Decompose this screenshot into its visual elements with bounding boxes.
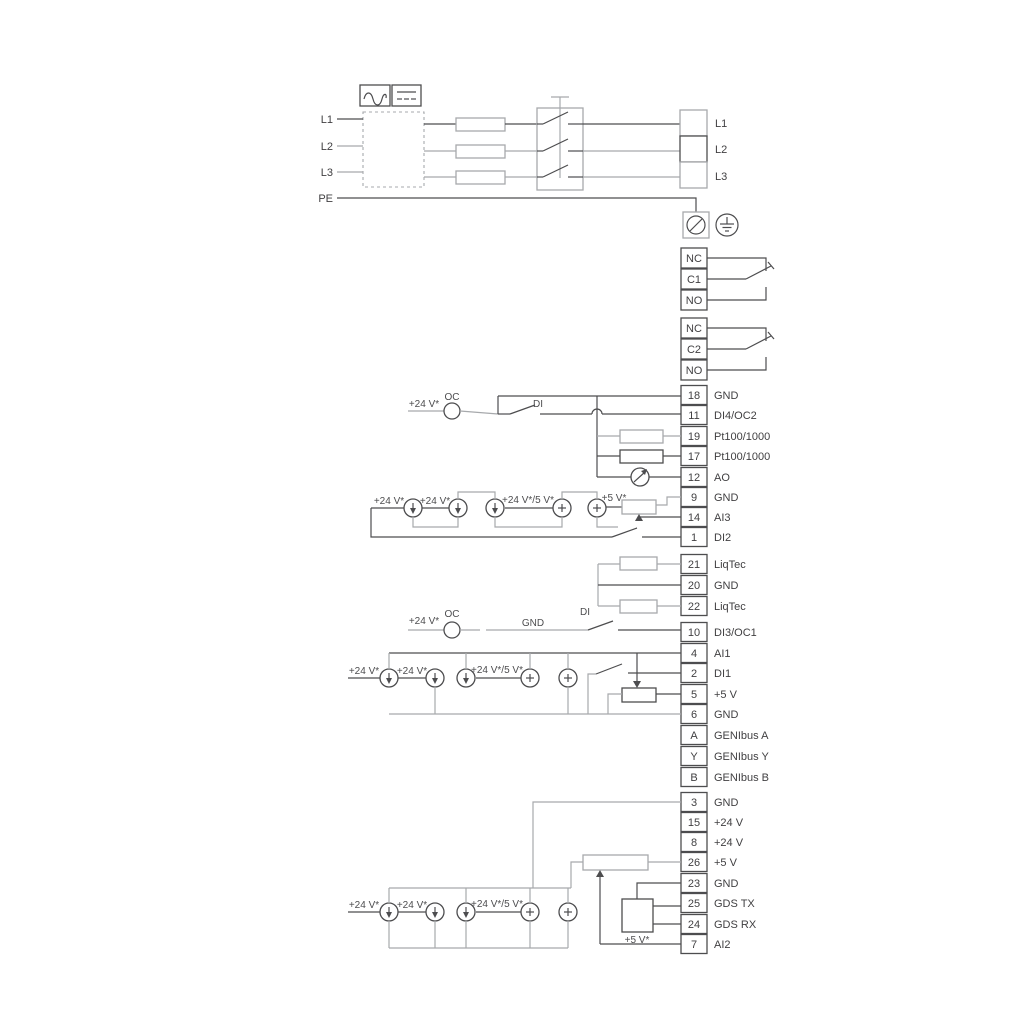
main-switch (537, 97, 583, 190)
terminal-number: 20 (688, 580, 700, 592)
v24-label: +24 V* (409, 616, 439, 627)
terminal-number: 3 (691, 797, 697, 809)
terminal-label: GND (714, 878, 739, 890)
terminal-label: GND (714, 709, 739, 721)
terminal-number: 22 (688, 601, 700, 613)
relay2-contact (707, 328, 774, 370)
mains-out-l3-label: L3 (715, 171, 727, 183)
v24-label: +24 V* (409, 399, 439, 410)
gds-module (622, 899, 653, 932)
terminal-number: 17 (688, 451, 700, 463)
io-terminal-strip: 18 GND 11 DI4/OC2 19 Pt100/1000 17 Pt100… (681, 386, 770, 954)
terminal-number: 26 (688, 857, 700, 869)
terminal-label: GENIbus B (714, 772, 769, 784)
mains-terminal-block: L1 L2 L3 (680, 110, 727, 188)
potentiometer (622, 500, 656, 514)
terminal-number: 14 (688, 512, 700, 524)
v24-label: +24 V* (374, 496, 404, 507)
terminal-number: B (690, 772, 697, 784)
wiring-diagram: L1 L2 L3 PE (0, 0, 1024, 1024)
v24-5v-label: +24 V*/5 V* (471, 665, 523, 676)
terminal-label: +5 V (714, 857, 738, 869)
terminal-label: GDS RX (714, 919, 757, 931)
di4-oc2-circuit: +24 V* OC DI (408, 392, 681, 486)
terminal-label: GENIbus A (714, 730, 769, 742)
terminal-label: DI4/OC2 (714, 410, 757, 422)
relay2-nc: NC (686, 323, 702, 335)
v24-label: +24 V* (349, 666, 379, 677)
oc-label: OC (445, 392, 460, 403)
terminal-number: 24 (688, 919, 700, 931)
fuse-feed-lines (424, 124, 456, 177)
v24-5v-label: +24 V*/5 V* (471, 899, 523, 910)
open-collector-node (444, 622, 460, 638)
current-source-icon (426, 903, 444, 921)
oc-label: OC (445, 609, 460, 620)
current-source-icon (380, 669, 398, 687)
terminal-number: 6 (691, 709, 697, 721)
potentiometer (583, 855, 648, 870)
terminal-number: 1 (691, 532, 697, 544)
mains-in-pe-label: PE (318, 193, 333, 205)
fuse-l2 (456, 145, 505, 158)
rcd-type-dc-symbol (392, 85, 421, 106)
mains-in-l2-label: L2 (321, 141, 333, 153)
terminal-number: 10 (688, 627, 700, 639)
terminal-label: LiqTec (714, 559, 746, 571)
relay2-no: NO (686, 365, 703, 377)
liqtec-circuit (598, 557, 681, 613)
current-source-icon (426, 669, 444, 687)
ai3-di2-circuit: +24 V* +24 V* +24 V*/5 V* (371, 492, 681, 537)
rcd-type-a-symbol (360, 85, 390, 106)
terminal-label: AO (714, 472, 730, 484)
v24-label: +24 V* (397, 666, 427, 677)
terminal-label: AI3 (714, 512, 731, 524)
terminal-label: GND (714, 797, 739, 809)
relay2-terminal-block: NC C2 NO (681, 318, 707, 380)
terminal-label: GND (714, 580, 739, 592)
terminal-label: GENIbus Y (714, 751, 769, 763)
terminal-label: +5 V (714, 689, 738, 701)
relay1-terminal-block: NC C1 NO (681, 248, 707, 310)
pt100-sensor-2 (620, 450, 663, 463)
rcd-dashed-box (363, 112, 424, 187)
terminal-number: 2 (691, 668, 697, 680)
fuse-l1 (456, 118, 505, 131)
terminal-number: 25 (688, 898, 700, 910)
pt100-sensor-1 (620, 430, 663, 443)
terminal-number: 18 (688, 390, 700, 402)
liqtec-sensor-1 (620, 557, 657, 570)
terminal-label: Pt100/1000 (714, 431, 770, 443)
terminal-number: 5 (691, 689, 697, 701)
relay1-no: NO (686, 295, 703, 307)
analog-output-meter-icon (631, 468, 649, 486)
v24-label: +24 V* (349, 900, 379, 911)
open-collector-node (444, 403, 460, 419)
terminal-label: GND (714, 492, 739, 504)
di-label: DI (580, 607, 590, 618)
terminal-label: AI2 (714, 939, 731, 951)
terminal-number: 19 (688, 431, 700, 443)
ai2-gds-circuit: +24 V* +24 V* +24 V*/5 V* (348, 802, 681, 948)
relay1-nc: NC (686, 253, 702, 265)
gnd-label: GND (522, 618, 544, 629)
terminal-label: DI3/OC1 (714, 627, 757, 639)
terminal-number: 15 (688, 817, 700, 829)
terminal-number: 4 (691, 648, 697, 660)
mains-input-labels: L1 L2 L3 PE (318, 114, 333, 205)
terminal-number: Y (690, 751, 698, 763)
terminal-label: +24 V (714, 837, 744, 849)
relay1-contact (707, 258, 774, 300)
terminal-label: DI2 (714, 532, 731, 544)
wiring-diagram-svg: L1 L2 L3 PE (0, 0, 1024, 1024)
relay1-c1: C1 (687, 274, 701, 286)
earth-ground-icon (716, 214, 738, 236)
mains-input-lines (337, 119, 363, 172)
liqtec-sensor-2 (620, 600, 657, 613)
terminal-number: 9 (691, 492, 697, 504)
current-source-icon (380, 903, 398, 921)
mains-out-l2-label: L2 (715, 144, 727, 156)
terminal-label: DI1 (714, 668, 731, 680)
fuse-l3 (456, 171, 505, 184)
terminal-number: 12 (688, 472, 700, 484)
mains-in-l1-label: L1 (321, 114, 333, 126)
terminal-number: 8 (691, 837, 697, 849)
switch-feed-lines (505, 124, 537, 177)
voltage-source-icon (521, 903, 539, 921)
pe-line (337, 198, 696, 212)
mains-out-l1-label: L1 (715, 118, 727, 130)
terminal-label: GND (714, 390, 739, 402)
voltage-source-icon (553, 499, 571, 517)
terminal-label: LiqTec (714, 601, 746, 613)
di-label: DI (533, 399, 543, 410)
v24-5v-label: +24 V*/5 V* (502, 495, 554, 506)
voltage-source-icon (521, 669, 539, 687)
voltage-source-icon (559, 903, 577, 921)
v5-label: +5 V* (625, 935, 650, 946)
terminal-number: 11 (688, 410, 699, 422)
terminal-label: Pt100/1000 (714, 451, 770, 463)
mains-in-l3-label: L3 (321, 167, 333, 179)
pe-gland-symbol (683, 212, 709, 238)
terminal-number: 21 (688, 559, 700, 571)
potentiometer (622, 688, 656, 702)
terminal-number: A (690, 730, 698, 742)
mains-out-lines (583, 124, 680, 177)
terminal-label: GDS TX (714, 898, 755, 910)
v24-label: +24 V* (420, 496, 450, 507)
relay2-c2: C2 (687, 344, 701, 356)
terminal-label: AI1 (714, 648, 731, 660)
v24-label: +24 V* (397, 900, 427, 911)
terminal-number: 23 (688, 878, 700, 890)
terminal-number: 7 (691, 939, 697, 951)
voltage-source-icon (559, 669, 577, 687)
current-source-icon (449, 499, 467, 517)
ai1-di1-circuit: +24 V* +24 V* +24 V*/5 V* (348, 653, 681, 714)
terminal-label: +24 V (714, 817, 744, 829)
